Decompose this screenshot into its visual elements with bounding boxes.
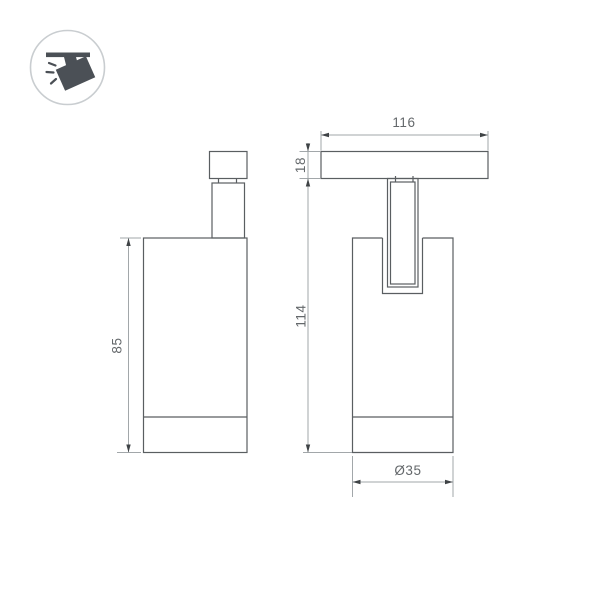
dim-label-85: 85 [110,337,125,353]
front-view [321,152,488,453]
dim-track-width: 116 [321,115,488,151]
dim-track-height-and-overall: 18 114 [293,143,352,453]
dimension-drawing: 85 116 [0,0,600,600]
dim-arrow-up [126,238,130,246]
front-view-body [353,238,454,453]
dim-track-width-lines [321,131,488,151]
dim-arrow-left [321,133,329,137]
front-view-yoke-slot [383,238,423,294]
side-view-neck [212,183,245,238]
side-view-body [144,238,248,453]
dim-arrow-up-to-bar-bottom [306,179,310,187]
dim-arrow-right [480,133,488,137]
front-view-track-base [321,152,488,179]
dim-label-116: 116 [392,115,415,130]
side-view [144,152,248,453]
dim-arrow-down [126,445,130,453]
front-view-yoke-outer [388,179,419,288]
dim-arrow-right [445,480,453,484]
dim-body-height: 85 [110,238,142,453]
dim-arrow-down-to-bar-top [306,144,310,152]
dim-label-114: 114 [294,304,309,327]
dim-arrow-down-to-body-bottom [306,445,310,453]
dim-height-lines [300,143,353,453]
front-view-yoke-inner [391,182,416,284]
dim-body-diameter: Ø35 [353,456,454,497]
dim-arrow-left [353,480,361,484]
side-view-connector-tabs [219,179,237,184]
dim-label-diameter-35: Ø35 [394,463,421,478]
side-view-adapter [210,152,248,179]
technical-drawing-page: 85 116 [0,0,600,600]
dim-label-18: 18 [293,157,308,173]
